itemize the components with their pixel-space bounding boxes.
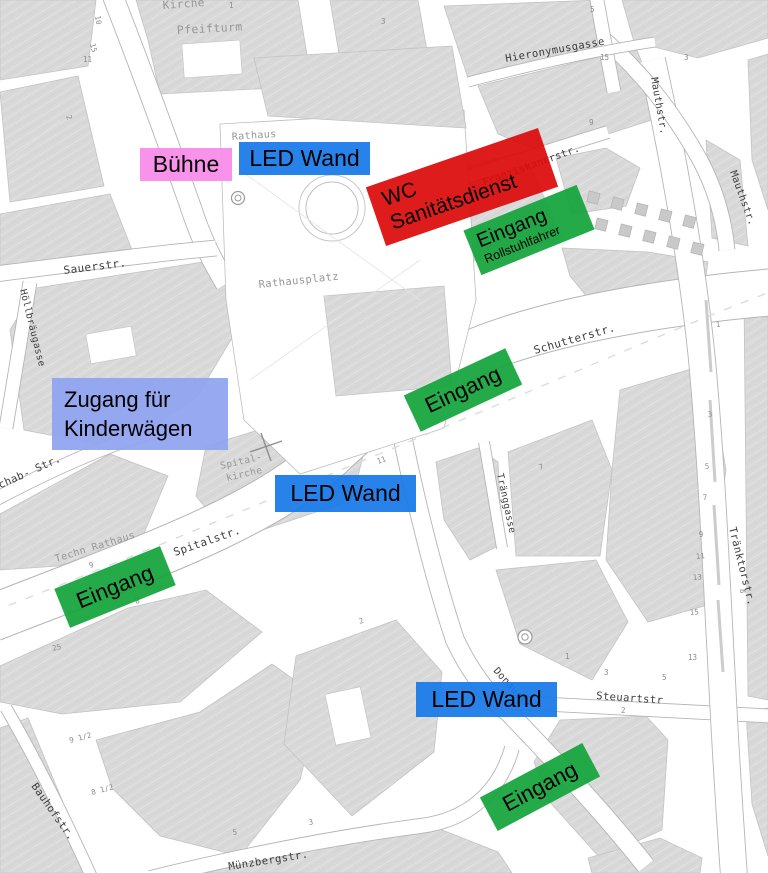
house-number: 7 (702, 493, 707, 502)
house-number: 11 (83, 55, 92, 64)
house-number: 11 (695, 551, 705, 561)
square-marker-icon (667, 236, 680, 249)
square-marker-icon (587, 191, 600, 204)
house-number: 5 (590, 5, 595, 14)
house-number: 5 (662, 673, 667, 682)
square-marker-icon (643, 230, 656, 243)
square-marker-icon (691, 242, 704, 255)
house-number: 3 (381, 17, 386, 26)
house-number: 9 (589, 118, 594, 127)
house-number: 13 (688, 653, 697, 662)
square-marker-icon (683, 215, 696, 228)
house-number: 3 (707, 410, 712, 419)
square-marker-icon (659, 209, 672, 222)
house-number: 1 (565, 652, 570, 661)
annotation-led-wand-mitte: LED Wand (275, 475, 416, 512)
house-number: 5 (704, 462, 709, 471)
annotation-led-wand-unten: LED Wand (416, 682, 557, 717)
annotation-buehne: Bühne (140, 148, 232, 181)
annotation-led-wand-top: LED Wand (239, 142, 370, 175)
house-number: 1 (229, 1, 234, 10)
house-number: 13 (692, 572, 702, 582)
house-number: 9 (698, 530, 703, 539)
house-number: 3 (684, 53, 689, 62)
annotation-led-wand-mitte-label: LED Wand (290, 480, 400, 507)
square-marker-icon (635, 203, 648, 216)
annotation-zugang-kinderwaegen: Zugang für Kinderwägen (52, 378, 228, 450)
square-marker-icon (619, 224, 632, 237)
annotation-led-wand-top-label: LED Wand (249, 145, 359, 172)
map-canvas: Sauerstr. Höllbräugasse Hieronymusgasse … (0, 0, 768, 873)
square-marker-icon (611, 197, 624, 210)
annotation-buehne-label: Bühne (153, 151, 220, 178)
house-number: 1 (715, 320, 720, 329)
house-number: 3 (604, 668, 609, 677)
house-number: 2 (621, 706, 626, 715)
house-number: 15 (600, 53, 609, 62)
square-marker-icon (595, 218, 608, 231)
annotation-led-wand-unten-label: LED Wand (431, 686, 541, 713)
fountain-icon (518, 630, 532, 644)
house-number: 15 (689, 607, 699, 617)
annotation-zugang-line2: Kinderwägen (64, 414, 192, 443)
annotation-zugang-line1: Zugang für (64, 385, 170, 414)
